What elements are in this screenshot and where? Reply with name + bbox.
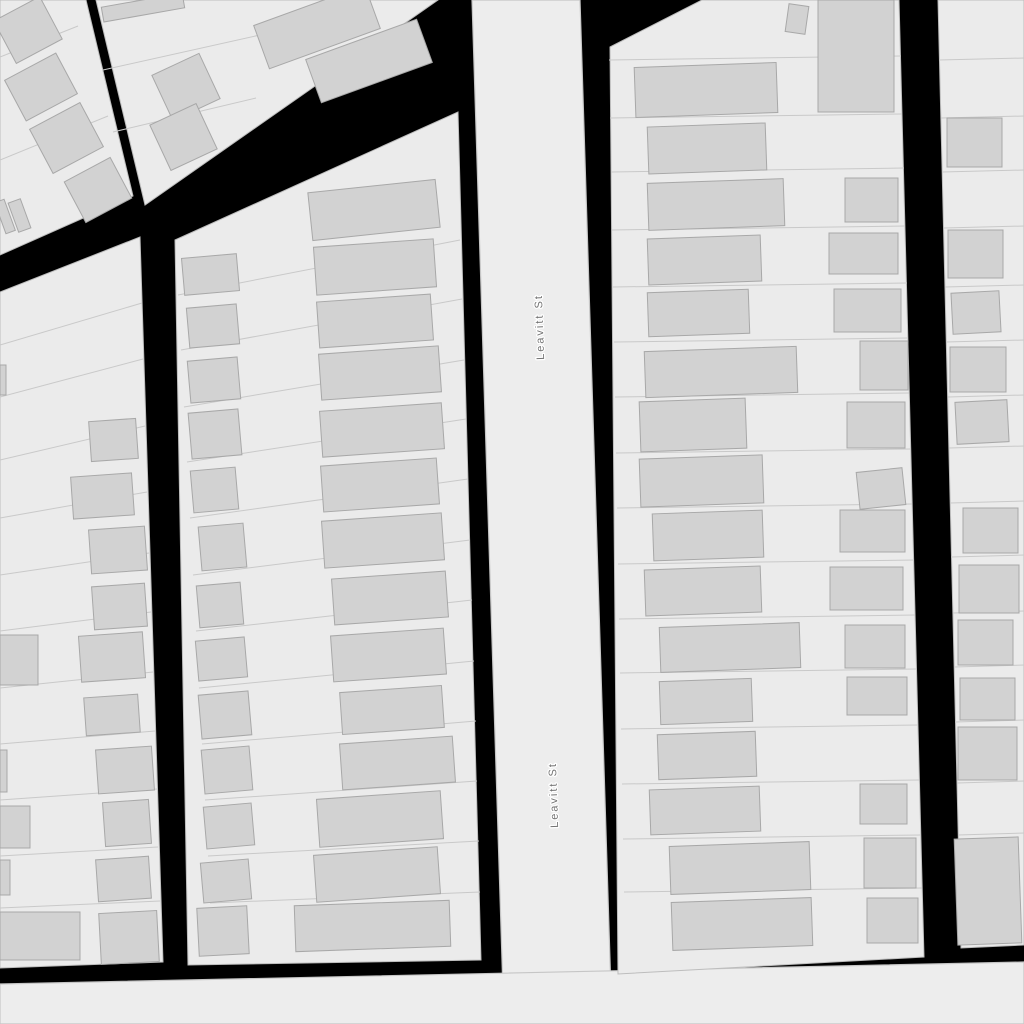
building	[201, 746, 253, 794]
block-east-of-leavitt	[609, 0, 924, 974]
building	[188, 409, 242, 459]
building	[92, 583, 148, 630]
building	[200, 859, 251, 903]
building	[0, 365, 6, 395]
building	[96, 856, 152, 902]
building	[659, 678, 752, 724]
building	[950, 347, 1006, 392]
building	[860, 784, 907, 824]
building	[847, 677, 907, 715]
building	[840, 510, 905, 552]
building	[320, 403, 445, 457]
building	[649, 786, 761, 835]
building	[321, 458, 440, 512]
building	[0, 912, 80, 960]
building	[845, 178, 898, 222]
building	[0, 806, 30, 848]
building	[829, 233, 898, 274]
building	[195, 637, 247, 681]
building	[89, 526, 148, 574]
building	[644, 566, 762, 616]
building	[647, 235, 762, 285]
building	[332, 571, 449, 625]
building	[316, 791, 443, 848]
building	[639, 455, 764, 507]
building	[657, 731, 757, 779]
building	[340, 736, 456, 790]
building	[647, 179, 785, 231]
building	[845, 625, 905, 668]
building	[639, 398, 747, 452]
building	[958, 620, 1013, 665]
building	[864, 838, 916, 888]
building	[0, 635, 38, 685]
building	[959, 565, 1019, 613]
building	[84, 694, 141, 736]
building	[89, 418, 139, 461]
building	[103, 799, 152, 846]
building	[955, 400, 1009, 445]
building	[294, 900, 451, 951]
building	[960, 678, 1015, 720]
building	[186, 304, 239, 348]
building	[99, 911, 160, 965]
building	[963, 508, 1018, 553]
building	[860, 341, 908, 390]
building	[322, 513, 445, 568]
building	[187, 357, 240, 403]
map-canvas[interactable]: Leavitt StLeavitt St	[0, 0, 1024, 1024]
building	[190, 467, 238, 513]
building	[0, 860, 10, 895]
block-center-west-of-leavitt	[175, 112, 481, 965]
building	[785, 4, 809, 35]
building	[198, 523, 247, 571]
building	[319, 346, 442, 400]
building	[652, 510, 764, 561]
building	[856, 468, 906, 510]
building	[198, 691, 252, 739]
building	[71, 473, 135, 519]
building	[634, 63, 778, 118]
building	[314, 847, 441, 903]
building	[867, 898, 918, 943]
building	[947, 118, 1002, 167]
building	[0, 750, 7, 792]
building	[196, 582, 243, 628]
building	[181, 254, 239, 296]
building	[954, 837, 1022, 945]
building	[951, 291, 1001, 334]
building	[644, 346, 798, 397]
building	[669, 842, 811, 895]
building	[197, 906, 249, 957]
building	[847, 402, 905, 448]
building	[830, 567, 903, 610]
building	[659, 623, 800, 673]
building	[203, 803, 254, 849]
building	[340, 685, 445, 734]
building	[313, 239, 436, 295]
block-west	[0, 237, 163, 968]
map-viewport[interactable]: Leavitt StLeavitt St	[0, 0, 1024, 1024]
street-label-leavitt-st: Leavitt St	[533, 294, 547, 360]
building	[647, 123, 767, 174]
building	[948, 230, 1003, 278]
street-label-leavitt-st: Leavitt St	[547, 762, 561, 828]
building	[78, 632, 145, 682]
building	[331, 628, 447, 682]
building	[317, 294, 434, 348]
building	[834, 289, 901, 332]
building	[671, 898, 813, 951]
building	[818, 0, 894, 112]
building	[96, 746, 155, 794]
building	[647, 289, 749, 336]
building	[958, 727, 1017, 780]
